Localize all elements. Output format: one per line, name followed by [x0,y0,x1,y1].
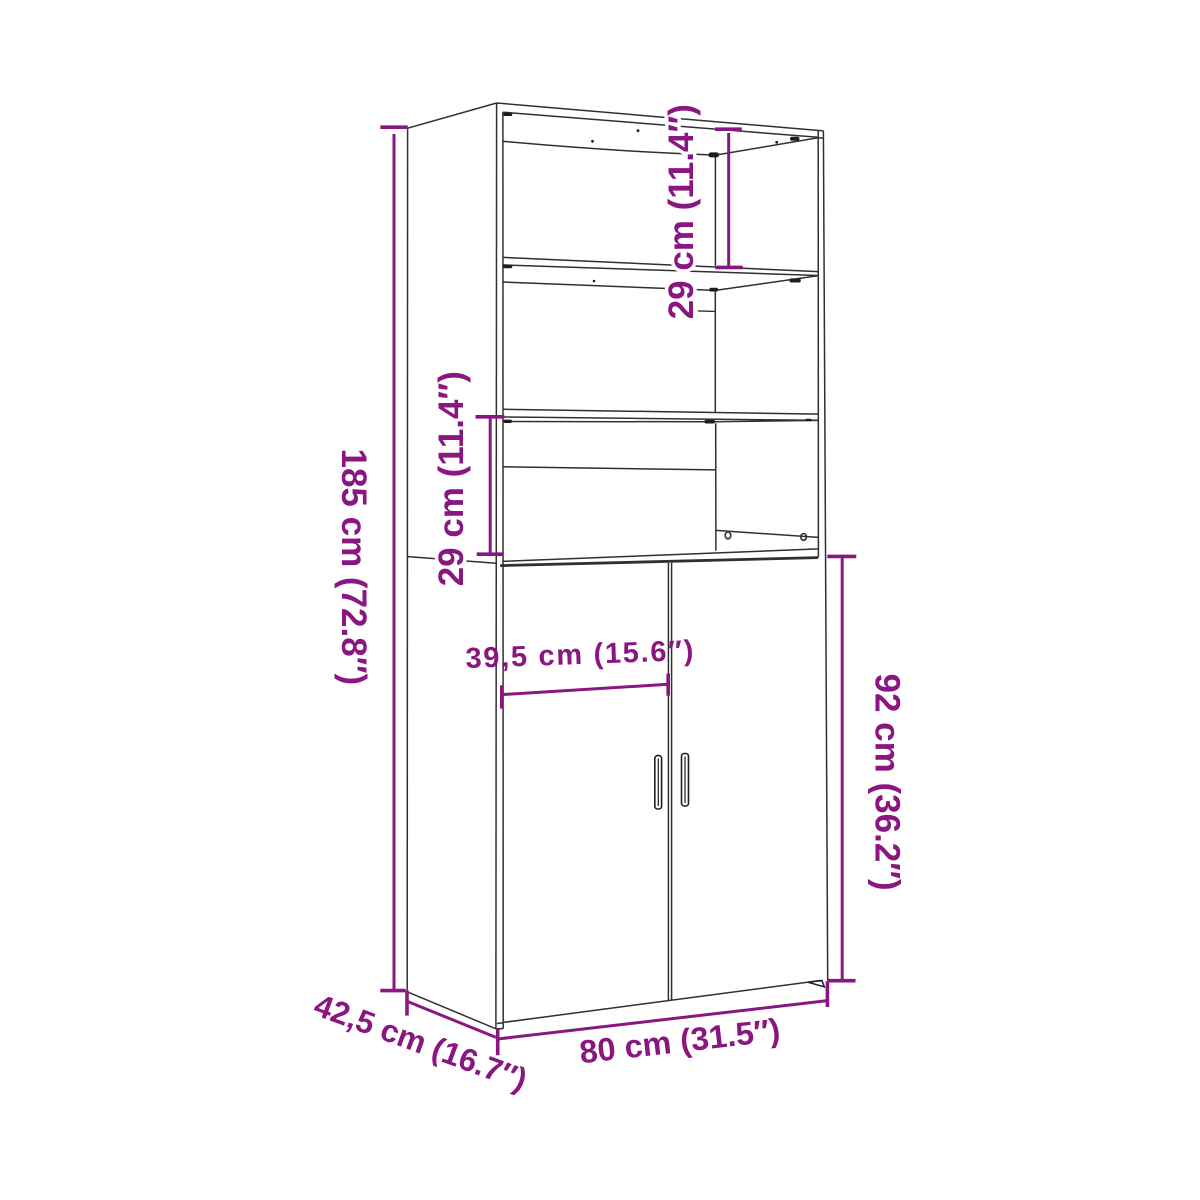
svg-text:92 cm (36.2″): 92 cm (36.2″) [867,674,906,891]
svg-text:29 cm (11.4″): 29 cm (11.4″) [432,371,471,586]
svg-text:29 cm (11.4″): 29 cm (11.4″) [662,104,701,319]
svg-text:185 cm (72.8″): 185 cm (72.8″) [334,448,373,685]
